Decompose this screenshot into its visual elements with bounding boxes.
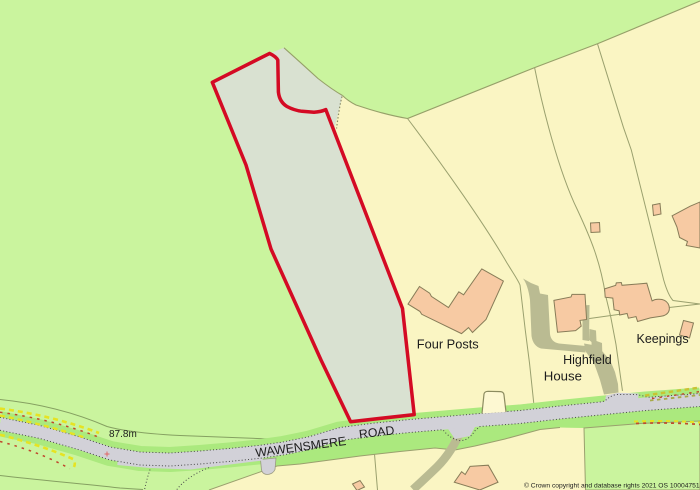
svg-text:Four Posts: Four Posts <box>417 337 479 352</box>
svg-text:© Crown copyright and database: © Crown copyright and database rights 20… <box>524 481 700 489</box>
svg-text:Keepings: Keepings <box>637 332 689 346</box>
svg-text:87.8m: 87.8m <box>109 429 137 440</box>
svg-text:House: House <box>544 368 582 383</box>
svg-text:Highfield: Highfield <box>563 353 612 367</box>
